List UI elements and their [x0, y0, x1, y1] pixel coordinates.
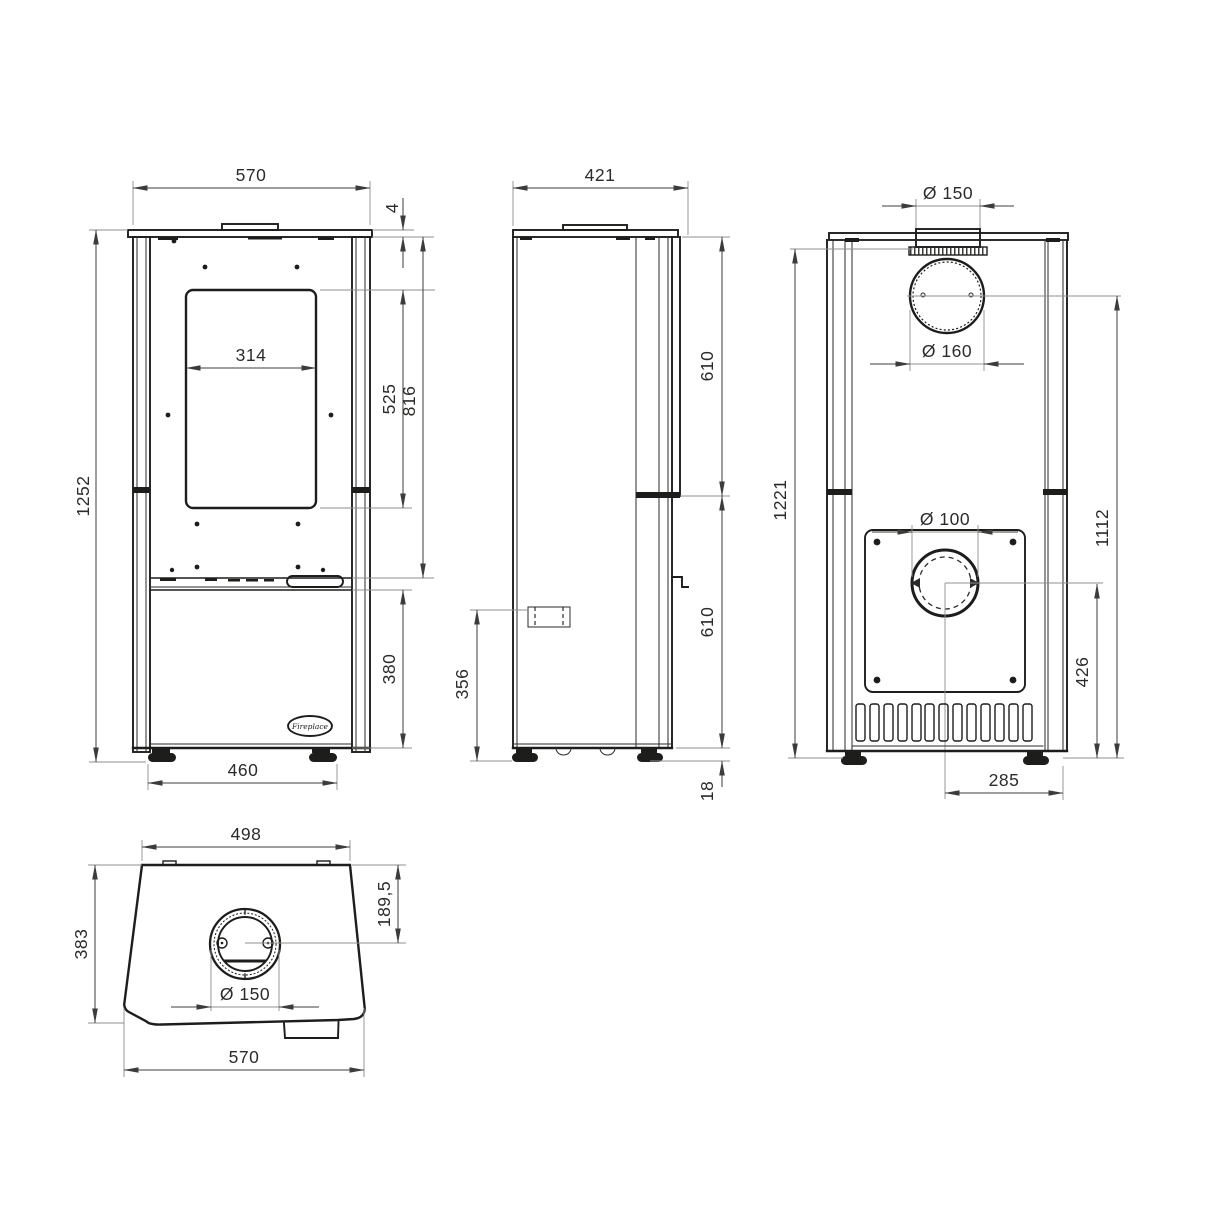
dim-rear-body-height: 1221: [770, 480, 790, 521]
dim-rear-air-center-height: 426: [1072, 657, 1092, 688]
dim-front-lower-door-height: 380: [379, 654, 399, 685]
dim-side-upper-height: 610: [697, 351, 717, 382]
dim-front-plate-thickness: 4: [382, 203, 402, 213]
dim-top-width: 498: [231, 824, 262, 844]
dim-rear-flue-center-height: 1112: [1092, 509, 1112, 547]
technical-drawing: Fireplace 570 4 1252 314 525 816: [0, 0, 1214, 1214]
dim-top-flue-diameter: Ø 150: [220, 984, 270, 1004]
dim-front-feet-spacing: 460: [228, 760, 259, 780]
dim-side-lower-height: 610: [697, 607, 717, 638]
rear-left-seam: [827, 489, 852, 495]
dim-rear-top-flue: Ø 150: [923, 183, 973, 203]
dim-front-firebox-top-height: 816: [399, 386, 419, 417]
dim-front-glass-width: 314: [236, 345, 267, 365]
dim-rear-flue-diameter: Ø 160: [922, 341, 972, 361]
side-rear-seam: [636, 492, 680, 498]
dim-front-glass-height: 525: [379, 384, 399, 415]
dim-side-foot-height: 18: [697, 781, 717, 801]
dim-top-depth: 383: [71, 929, 91, 960]
brand-logo-text: Fireplace: [291, 722, 328, 731]
dim-side-depth: 421: [585, 165, 616, 185]
left-panel-seam: [133, 487, 150, 493]
right-panel-seam: [352, 487, 370, 493]
dim-top-flue-offset: 189,5: [374, 881, 394, 927]
dim-front-total-height: 1252: [73, 476, 93, 517]
rear-right-seam: [1043, 489, 1067, 495]
dim-rear-air-center-offset: 285: [989, 770, 1020, 790]
dim-top-bottom-width: 570: [229, 1047, 260, 1067]
dim-front-width-top: 570: [236, 165, 267, 185]
dim-rear-air-inlet: Ø 100: [920, 509, 970, 529]
dim-side-outlet-height: 356: [452, 669, 472, 700]
